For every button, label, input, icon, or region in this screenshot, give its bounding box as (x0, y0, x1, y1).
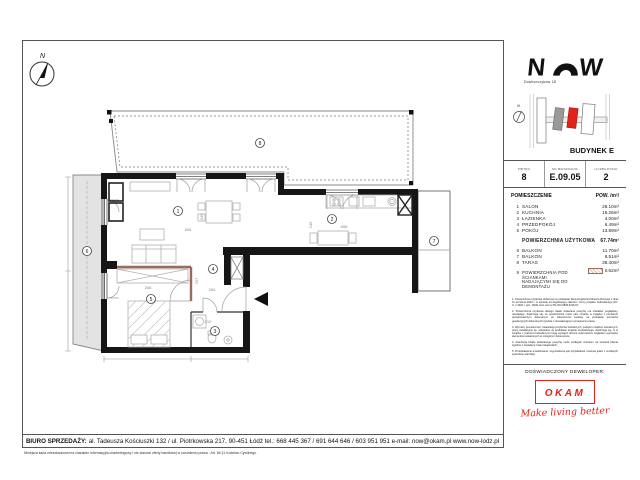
apartment-number-value: E.09.05 (549, 172, 580, 182)
brand-section: N W Dowborczyków 18 N (504, 40, 626, 161)
legal-note-3: 3. Wymiary pomieszczeń, lokalizacja przy… (512, 326, 618, 338)
building-label: BUDYNEK E (570, 146, 614, 155)
room-badge-5: 5 (150, 297, 153, 303)
site-building-dark (553, 108, 565, 131)
logo-subtitle: Dowborczyków 18 (524, 80, 556, 84)
room-badge-2: 2 (331, 217, 334, 223)
sales-office-label: BIURO SPRZEDAŻY: (26, 438, 87, 445)
door-swings (107, 179, 357, 312)
furniture (109, 182, 412, 347)
sales-office-details: al. Tadeusza Kościuszki 132 / ul. Piotrk… (89, 438, 499, 445)
apartment-number-cell: NR MIESZKANIA E.09.05 (545, 161, 586, 187)
legal-notes: 1. Powierzchnia użytkowa obliczona na po… (504, 292, 626, 361)
room-badge-6: 6 (86, 249, 89, 255)
demountable-wall-swatch (588, 268, 603, 274)
site-building-a (537, 98, 546, 143)
hall-wardrobe (231, 257, 243, 279)
sideboard (130, 182, 170, 191)
site-plan: N BUDYNEK E (510, 90, 620, 156)
rooms-count-value: 2 (603, 172, 608, 182)
kitchen-table (310, 231, 356, 245)
room-name: POWIERZCHNIA POD ŚCIANKAMI NADAJĄCYMI SI… (522, 271, 588, 290)
coffee-table (140, 229, 164, 240)
kitchen-shaft (398, 195, 412, 215)
dim-658: 658 (341, 224, 348, 229)
compass: N (20, 48, 64, 94)
legal-note-4: 4. Aranżacja lokalu pokazanego powyżej m… (512, 341, 618, 347)
site-compass: N (514, 103, 525, 123)
dim-246: 246 (308, 221, 313, 228)
developer-heading: DOŚWIADCZONY DEWELOPER: (504, 370, 626, 375)
svg-text:N: N (526, 55, 547, 80)
room-badge-1: 1 (177, 209, 180, 215)
floor-value: 8 (521, 172, 526, 182)
header-room: POMIESZCZENIE (511, 193, 552, 199)
room-no: 5 (511, 228, 519, 234)
sales-office-bar: BIURO SPRZEDAŻY: al. Tadeusza Kościuszki… (22, 434, 503, 448)
developer-section: DOŚWIADCZONY DEWELOPER: OKAM Make living… (504, 364, 626, 418)
legal-note-1: 1. Powierzchnia użytkowa obliczona na po… (512, 298, 618, 307)
okam-logo-text: OKAM (545, 388, 586, 399)
bedroom-wardrobe (117, 269, 188, 283)
dim-257: 257 (194, 277, 199, 284)
svg-text:W: W (578, 55, 605, 80)
site-building-highlight (567, 108, 578, 129)
bed (128, 301, 170, 347)
room-name: TARAS (522, 260, 602, 266)
room-badge-8: 8 (259, 141, 262, 147)
info-panel: N W Dowborczyków 18 N (503, 40, 626, 448)
header-area: POW. /m²/ (596, 193, 619, 199)
marketing-footnote: Niniejsza karta mieszkaniowa ma charakte… (24, 451, 257, 455)
legal-note-5: 5. Przedstawione umeblowanie i wyposażen… (512, 350, 618, 356)
floor-cell: PIĘTRO 8 (504, 161, 545, 187)
dim-268: 268 (145, 285, 152, 290)
dim-805: 805 (185, 227, 192, 232)
developer-slogan: Make living better (504, 405, 626, 420)
dim-210: 210 (205, 319, 212, 324)
site-north-label: N (517, 103, 520, 108)
okam-logo: OKAM (535, 380, 596, 404)
rooms-count-cell: LICZBA POKOI 2 (586, 161, 626, 187)
unit-info-row: PIĘTRO 8 NR MIESZKANIA E.09.05 LICZBA PO… (504, 161, 626, 188)
apartment-card-page: N (0, 0, 640, 480)
rooms-count-caption: LICZBA POKOI (594, 167, 617, 171)
legal-note-2: 2. Powierzchnia użytkowa danego lokalu w… (512, 310, 618, 322)
balcony-left (73, 175, 104, 351)
usable-area-label: POWIERZCHNIA UŻYTKOWA (522, 238, 600, 244)
dim-264: 264 (209, 287, 216, 292)
demountable-name-line2: NADAJĄCYMI SIĘ DO DEMONTAŻU (522, 280, 588, 290)
floor-caption: PIĘTRO (518, 167, 530, 171)
sofa (132, 245, 176, 263)
floor-plan: 805 346 658 246 268 264 257 210 1 2 3 4 … (60, 95, 460, 367)
room-badge-7: 7 (433, 239, 436, 245)
dim-346: 346 (199, 213, 204, 220)
site-building-b (581, 104, 595, 135)
room-name: POKÓJ (522, 228, 602, 234)
apartment-number-caption: NR MIESZKANIA (552, 167, 578, 171)
room-area: 13.89m² (602, 228, 619, 234)
room-area: 38.40m² (602, 260, 619, 266)
entrance-arrow-icon (254, 292, 268, 306)
room-badge-4: 4 (212, 267, 215, 273)
compass-needle (36, 63, 48, 85)
now-logo: N W (522, 52, 610, 80)
extra-row: 8 TARAS 38.40m² (511, 260, 619, 266)
rooms-table: POMIESZCZENIE POW. /m²/ 1 SALON 28.10m² … (504, 188, 626, 292)
room-no: 9 (511, 270, 519, 276)
demountable-area-row: 9 POWIERZCHNIA POD ŚCIANKAMI NADAJĄCYMI … (511, 268, 619, 290)
usable-area-value: 67.74m² (600, 238, 619, 244)
compass-north-label: N (40, 53, 46, 60)
room-row: 5 POKÓJ 13.89m² (511, 228, 619, 234)
room-no: 8 (511, 260, 519, 266)
room-badge-3: 3 (214, 329, 217, 335)
dining-table (198, 201, 240, 223)
usable-area-row: POWIERZCHNIA UŻYTKOWA 67.74m² (511, 238, 619, 244)
room-area: 0.62m² (605, 268, 619, 274)
rooms-table-header: POMIESZCZENIE POW. /m²/ (511, 193, 619, 199)
